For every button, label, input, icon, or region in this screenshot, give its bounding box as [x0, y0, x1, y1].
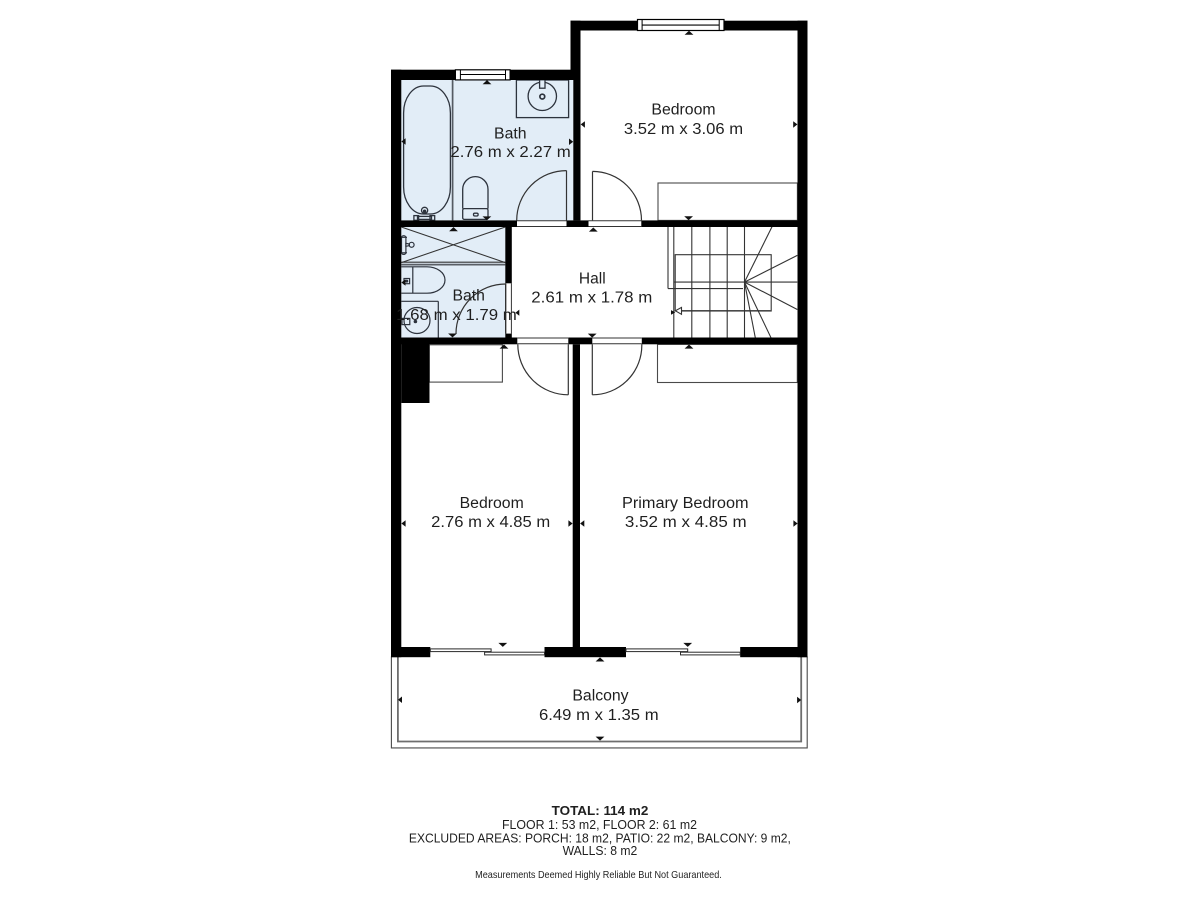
- svg-text:Measurements Deemed Highly Rel: Measurements Deemed Highly Reliable But …: [475, 870, 722, 881]
- svg-text:3.52 m x 3.06 m: 3.52 m x 3.06 m: [624, 121, 743, 138]
- svg-text:Bath: Bath: [494, 126, 527, 143]
- svg-text:Bedroom: Bedroom: [651, 101, 715, 118]
- svg-text:2.76 m x 2.27 m: 2.76 m x 2.27 m: [450, 144, 570, 161]
- svg-text:Bedroom: Bedroom: [460, 495, 524, 512]
- svg-text:1.68 m x 1.79 m: 1.68 m x 1.79 m: [396, 307, 517, 324]
- svg-text:2.76 m x 4.85 m: 2.76 m x 4.85 m: [431, 514, 550, 531]
- svg-text:Hall: Hall: [579, 270, 606, 287]
- svg-text:Balcony: Balcony: [572, 688, 629, 705]
- svg-text:WALLS: 8 m2: WALLS: 8 m2: [563, 843, 638, 858]
- svg-text:Primary Bedroom: Primary Bedroom: [622, 495, 749, 512]
- svg-text:6.49 m x 1.35 m: 6.49 m x 1.35 m: [539, 707, 659, 724]
- svg-text:Bath: Bath: [453, 287, 485, 304]
- svg-text:2.61 m x 1.78 m: 2.61 m x 1.78 m: [531, 289, 652, 306]
- svg-text:3.52 m x 4.85 m: 3.52 m x 4.85 m: [625, 514, 747, 531]
